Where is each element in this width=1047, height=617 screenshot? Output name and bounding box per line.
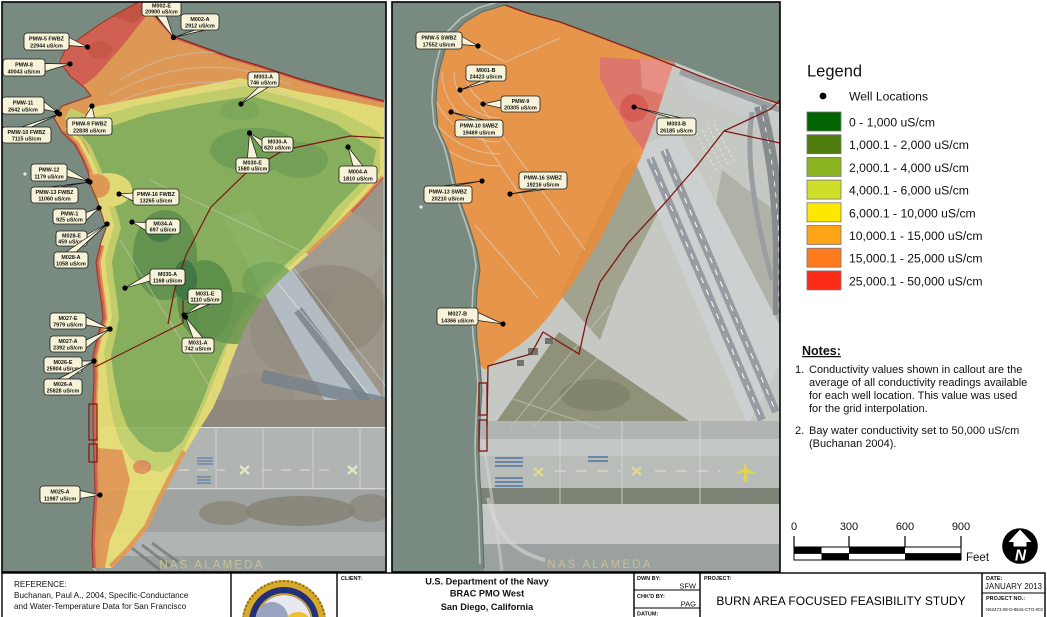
- svg-text:M028-E: M028-E: [62, 233, 81, 239]
- svg-text:PMW-16 FWBZ: PMW-16 FWBZ: [137, 192, 176, 198]
- svg-text:PMW-10 SWBZ: PMW-10 SWBZ: [460, 123, 499, 129]
- svg-text:DWN BY:: DWN BY:: [637, 576, 661, 582]
- svg-text:1179 uS/cm: 1179 uS/cm: [34, 174, 64, 180]
- svg-text:6,000.1 - 10,000 uS/cm: 6,000.1 - 10,000 uS/cm: [849, 206, 976, 220]
- svg-text:M031-A: M031-A: [188, 340, 207, 346]
- svg-text:JANUARY 2013: JANUARY 2013: [985, 582, 1043, 591]
- svg-text:N62473-08-D-8616-CTO-002: N62473-08-D-8616-CTO-002: [986, 607, 1044, 612]
- svg-text:N: N: [1015, 548, 1027, 565]
- svg-text:PMW-9: PMW-9: [512, 99, 530, 105]
- svg-text:NAS ALAMEDA: NAS ALAMEDA: [159, 560, 264, 572]
- svg-text:10,000.1 - 15,000 uS/cm: 10,000.1 - 15,000 uS/cm: [849, 229, 982, 243]
- svg-text:CLIENT:: CLIENT:: [341, 576, 362, 582]
- svg-text:1058 uS/cm: 1058 uS/cm: [56, 261, 86, 267]
- svg-text:Bay water conductivity set to: Bay water conductivity set to 50,000 uS/…: [809, 425, 1019, 437]
- svg-text:for the grid interpolation.: for the grid interpolation.: [809, 403, 928, 415]
- svg-text:PMW-8: PMW-8: [15, 62, 33, 68]
- svg-text:Conductivity values shown in c: Conductivity values shown in callout are…: [809, 364, 1022, 376]
- svg-text:PMW-5 FWBZ: PMW-5 FWBZ: [29, 36, 65, 42]
- svg-text:620 uS/cm: 620 uS/cm: [264, 145, 291, 151]
- svg-text:300: 300: [840, 521, 858, 533]
- svg-text:1168 uS/cm: 1168 uS/cm: [153, 278, 183, 284]
- svg-text:4,000.1 - 6,000 uS/cm: 4,000.1 - 6,000 uS/cm: [849, 184, 969, 198]
- svg-text:M003-A: M003-A: [254, 74, 273, 80]
- svg-text:San Diego, California: San Diego, California: [441, 602, 534, 612]
- svg-text:900: 900: [952, 521, 970, 533]
- svg-text:M026-E: M026-E: [54, 360, 73, 366]
- svg-text:PMW-13 FWBZ: PMW-13 FWBZ: [36, 190, 75, 196]
- svg-text:M002-A: M002-A: [190, 17, 209, 23]
- svg-text:PMW-11: PMW-11: [13, 100, 34, 106]
- svg-text:7979 uS/cm: 7979 uS/cm: [53, 322, 83, 328]
- svg-text:M025-A: M025-A: [50, 489, 69, 495]
- svg-text:22838 uS/cm: 22838 uS/cm: [73, 128, 106, 134]
- svg-text:13265 uS/cm: 13265 uS/cm: [140, 198, 173, 204]
- svg-text:1110 uS/cm: 1110 uS/cm: [190, 297, 219, 303]
- svg-text:U.S. Department of the Navy: U.S. Department of the Navy: [425, 577, 549, 587]
- svg-text:CHK'D BY:: CHK'D BY:: [637, 594, 665, 600]
- svg-text:2.: 2.: [795, 425, 804, 437]
- svg-text:25,000.1 - 50,000 uS/cm: 25,000.1 - 50,000 uS/cm: [849, 274, 982, 288]
- svg-text:PMW-5 SWBZ: PMW-5 SWBZ: [421, 35, 457, 41]
- svg-text:M026-A: M026-A: [53, 382, 72, 388]
- svg-text:15,000.1 - 25,000 uS/cm: 15,000.1 - 25,000 uS/cm: [849, 252, 982, 266]
- svg-text:(Buchanan 2004).: (Buchanan 2004).: [809, 438, 896, 450]
- svg-text:22944 uS/cm: 22944 uS/cm: [30, 43, 63, 49]
- svg-text:PMW-16 SWBZ: PMW-16 SWBZ: [524, 175, 563, 181]
- svg-text:average of all conductivity re: average of all conductivity readings ava…: [809, 377, 1027, 389]
- svg-text:14366 uS/cm: 14366 uS/cm: [441, 318, 474, 324]
- svg-text:M027-B: M027-B: [448, 311, 467, 317]
- svg-text:and Water-Temperature Data for: and Water-Temperature Data for San Franc…: [14, 602, 187, 611]
- svg-text:40043 uS/cm: 40043 uS/cm: [8, 69, 41, 75]
- svg-text:2392 uS/cm: 2392 uS/cm: [53, 345, 83, 351]
- svg-text:PROJECT:: PROJECT:: [704, 576, 731, 582]
- svg-text:2912 uS/cm: 2912 uS/cm: [185, 23, 215, 29]
- svg-text:20305 uS/cm: 20305 uS/cm: [504, 105, 537, 111]
- svg-text:2,000.1 - 4,000 uS/cm: 2,000.1 - 4,000 uS/cm: [849, 161, 969, 175]
- svg-text:NAS ALAMEDA: NAS ALAMEDA: [547, 559, 652, 571]
- svg-text:M028-A: M028-A: [61, 255, 80, 261]
- svg-text:17552 uS/cm: 17552 uS/cm: [423, 42, 456, 48]
- svg-text:26185 uS/cm: 26185 uS/cm: [660, 128, 693, 134]
- svg-text:1.: 1.: [795, 364, 804, 376]
- svg-text:M027-E: M027-E: [59, 316, 78, 322]
- svg-text:742 uS/cm: 742 uS/cm: [185, 346, 212, 352]
- svg-text:697 uS/cm: 697 uS/cm: [150, 227, 177, 233]
- svg-text:1,000.1 - 2,000 uS/cm: 1,000.1 - 2,000 uS/cm: [849, 138, 969, 152]
- svg-text:19469 uS/cm: 19469 uS/cm: [463, 130, 496, 136]
- svg-text:PMW-10 FWBZ: PMW-10 FWBZ: [8, 130, 47, 136]
- svg-text:19216 uS/cm: 19216 uS/cm: [527, 182, 560, 188]
- svg-text:1810 uS/cm: 1810 uS/cm: [343, 176, 373, 182]
- svg-text:11987 uS/cm: 11987 uS/cm: [44, 496, 77, 502]
- svg-text:2642 uS/cm: 2642 uS/cm: [8, 107, 38, 113]
- svg-text:DATUM:: DATUM:: [637, 612, 658, 617]
- svg-text:SFW: SFW: [679, 582, 697, 591]
- svg-text:Legend: Legend: [807, 63, 862, 81]
- svg-text:REFERENCE:: REFERENCE:: [14, 580, 67, 589]
- svg-text:PMW-1: PMW-1: [61, 211, 79, 217]
- svg-text:PMW-13 SWBZ: PMW-13 SWBZ: [429, 189, 468, 195]
- svg-text:M034-A: M034-A: [153, 221, 172, 227]
- svg-text:Buchanan, Paul A., 2004, Speci: Buchanan, Paul A., 2004, Specific-Conduc…: [14, 591, 189, 600]
- svg-text:11060 uS/cm: 11060 uS/cm: [38, 196, 71, 202]
- svg-text:BURN AREA FOCUSED FEASIBILITY: BURN AREA FOCUSED FEASIBILITY STUDY: [716, 594, 965, 608]
- svg-text:M004-A: M004-A: [348, 169, 367, 175]
- svg-text:20210 uS/cm: 20210 uS/cm: [432, 196, 465, 202]
- svg-text:20900 uS/cm: 20900 uS/cm: [145, 9, 178, 15]
- svg-text:0 - 1,000 uS/cm: 0 - 1,000 uS/cm: [849, 116, 935, 130]
- svg-text:M027-A: M027-A: [58, 339, 77, 345]
- svg-text:Notes:: Notes:: [802, 344, 841, 358]
- svg-text:600: 600: [896, 521, 914, 533]
- svg-text:925 uS/cm: 925 uS/cm: [56, 217, 83, 223]
- svg-text:PAG: PAG: [681, 600, 696, 609]
- svg-text:M031-E: M031-E: [196, 291, 215, 297]
- svg-text:M002-E: M002-E: [152, 3, 171, 9]
- svg-text:24423 uS/cm: 24423 uS/cm: [470, 74, 503, 80]
- svg-text:for each well location. This: for each well location. This value was u…: [809, 390, 1017, 402]
- svg-text:M030-E: M030-E: [243, 160, 262, 166]
- svg-text:BRAC PMO West: BRAC PMO West: [450, 589, 524, 599]
- svg-text:7115 uS/cm: 7115 uS/cm: [12, 136, 42, 142]
- svg-text:1580 uS/cm: 1580 uS/cm: [238, 166, 268, 172]
- svg-text:PMW-12: PMW-12: [39, 167, 60, 173]
- svg-text:25828 uS/cm: 25828 uS/cm: [47, 388, 80, 394]
- svg-text:M001-B: M001-B: [476, 68, 495, 74]
- svg-text:PMW-9 FWBZ: PMW-9 FWBZ: [72, 121, 108, 127]
- svg-text:Well Locations: Well Locations: [849, 90, 928, 104]
- svg-text:M030-A: M030-A: [268, 139, 287, 145]
- svg-text:Feet: Feet: [966, 552, 990, 564]
- svg-text:M035-A: M035-A: [158, 272, 177, 278]
- svg-text:PROJECT NO.:: PROJECT NO.:: [986, 596, 1025, 602]
- svg-text:M003-B: M003-B: [667, 121, 686, 127]
- svg-text:746 uS/cm: 746 uS/cm: [250, 80, 277, 86]
- svg-text:0: 0: [791, 521, 797, 533]
